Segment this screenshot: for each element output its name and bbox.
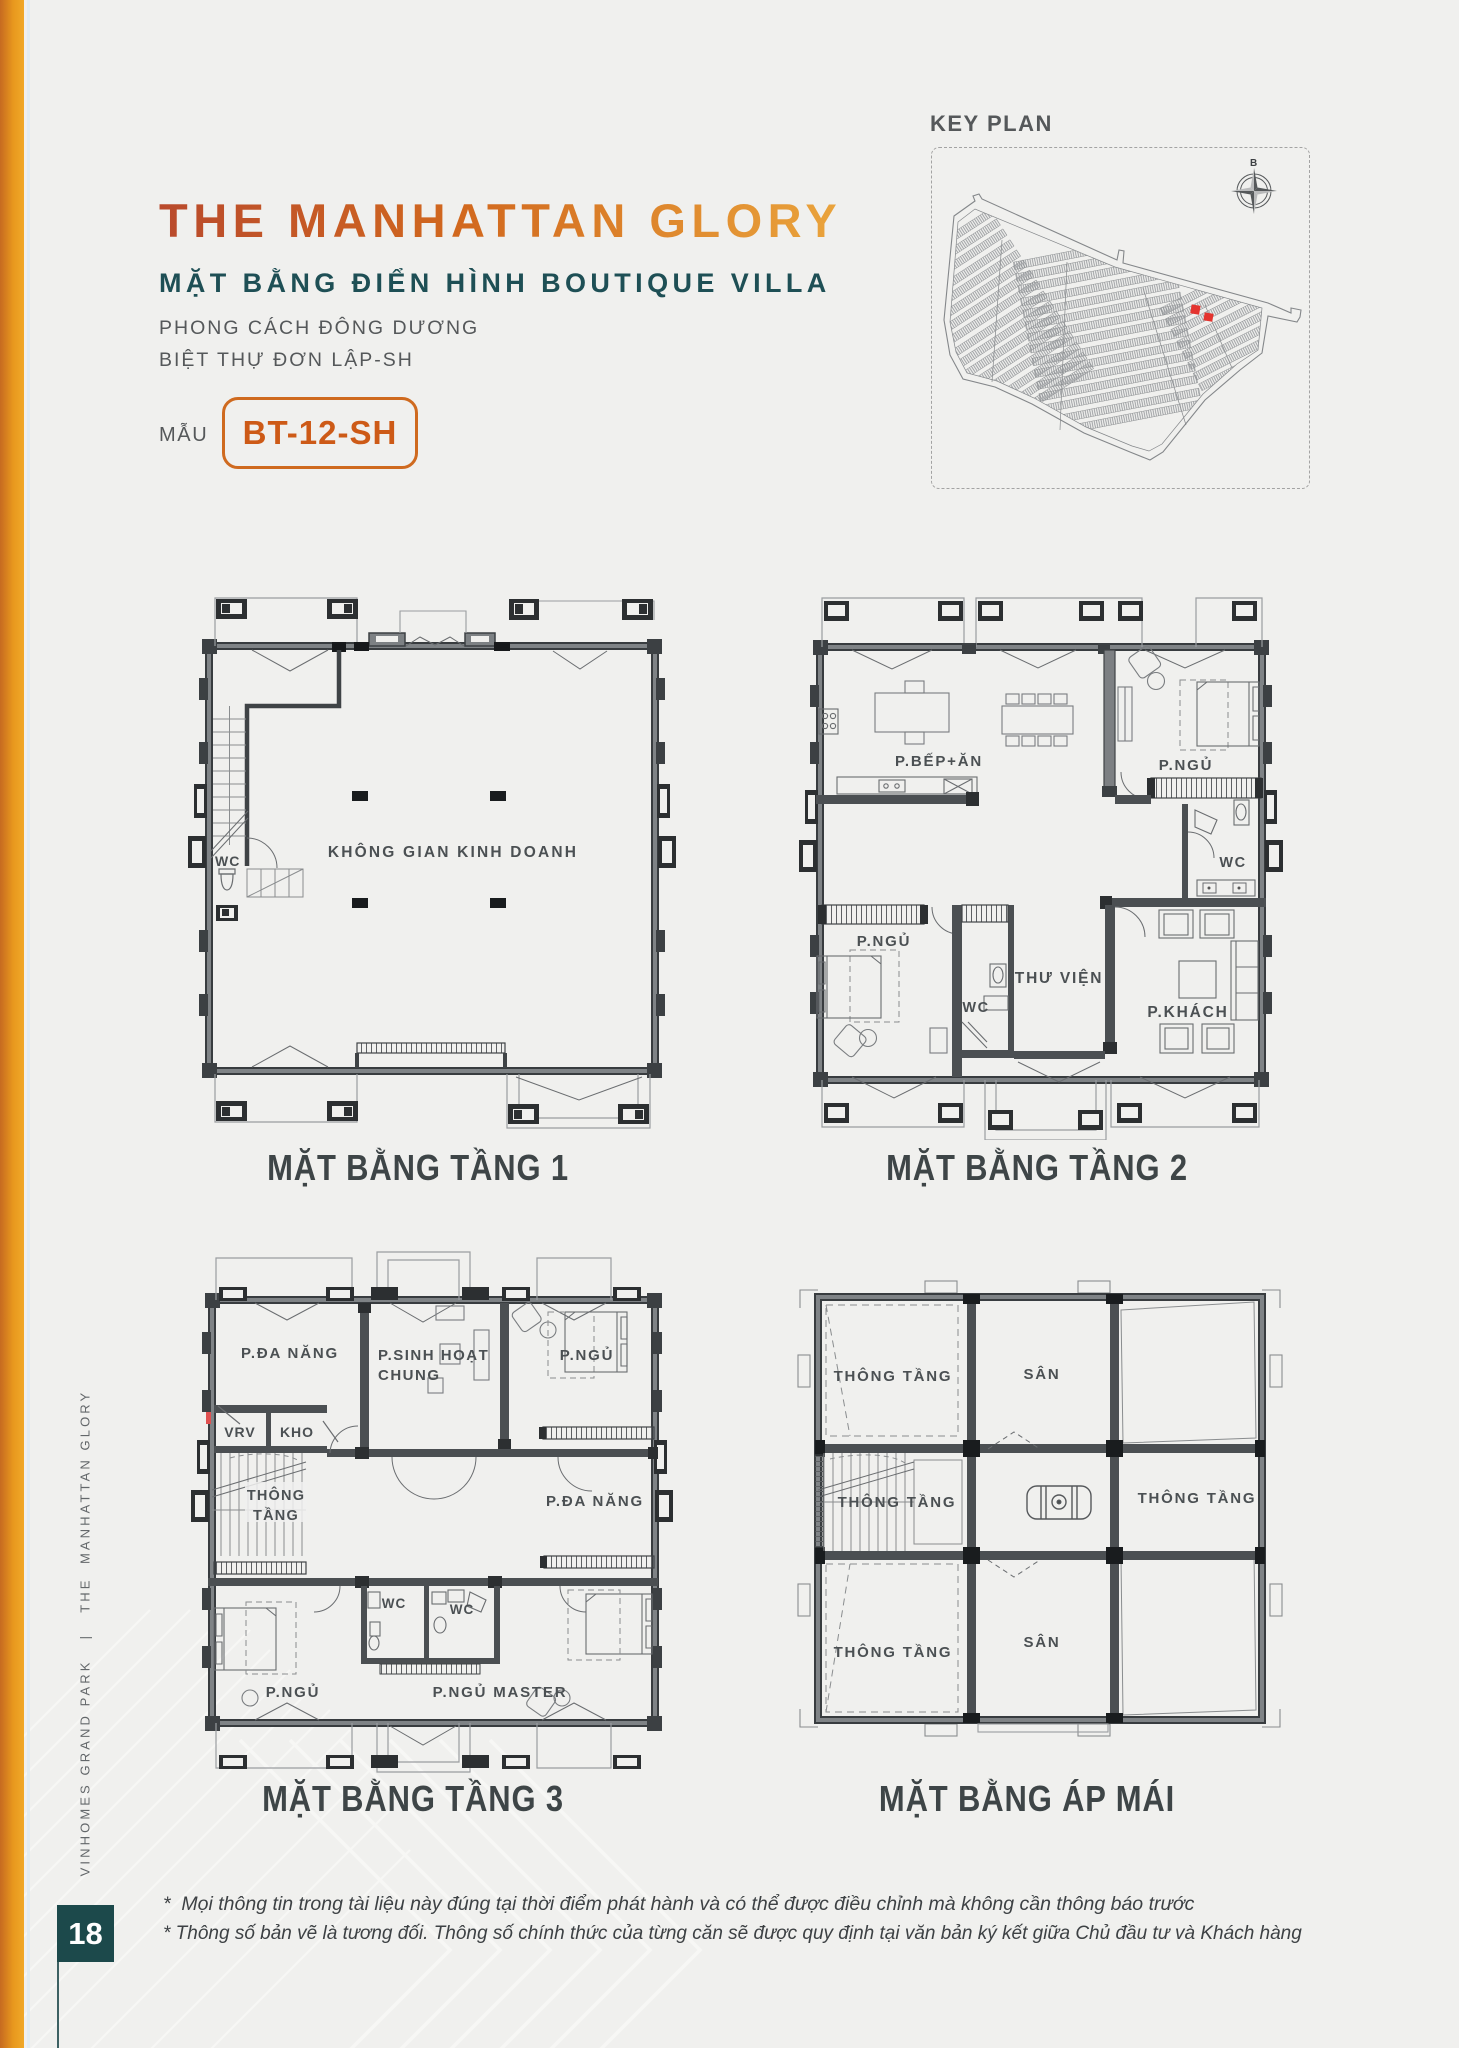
svg-text:THÔNG TẦNG: THÔNG TẦNG [838,1493,957,1511]
svg-text:WC: WC [382,1596,407,1611]
svg-text:P.BẾP+ĂN: P.BẾP+ĂN [895,753,983,770]
svg-text:SÂN: SÂN [1023,1365,1060,1383]
svg-text:KHÔNG GIAN KINH DOANH: KHÔNG GIAN KINH DOANH [328,843,578,861]
svg-text:P.NGỦ: P.NGỦ [266,1683,321,1701]
svg-text:CHUNG: CHUNG [378,1367,441,1384]
svg-text:WC: WC [1219,855,1246,871]
svg-text:THƯ VIỆN: THƯ VIỆN [1015,969,1103,987]
svg-text:B: B [1250,158,1257,169]
svg-text:P.NGỦ MASTER: P.NGỦ MASTER [433,1683,568,1701]
svg-text:THÔNG TẦNG: THÔNG TẦNG [834,1643,953,1661]
svg-text:THÔNG TẦNG: THÔNG TẦNG [1138,1489,1257,1507]
svg-text:VRV: VRV [224,1424,256,1440]
svg-text:WC: WC [215,853,240,869]
svg-text:THÔNG TẦNG: THÔNG TẦNG [834,1367,953,1385]
svg-text:P.NGỦ: P.NGỦ [1159,756,1214,774]
svg-text:P.ĐA NĂNG: P.ĐA NĂNG [241,1345,339,1362]
svg-text:P.SINH HOẠT: P.SINH HOẠT [378,1347,489,1364]
svg-text:WC: WC [962,1000,989,1016]
svg-text:KHO: KHO [280,1424,314,1440]
svg-text:P.NGỦ: P.NGỦ [857,932,912,950]
svg-text:TẦNG: TẦNG [253,1507,299,1524]
svg-text:P.NGỦ: P.NGỦ [560,1346,615,1364]
svg-text:THÔNG: THÔNG [247,1486,305,1504]
svg-text:SÂN: SÂN [1023,1633,1060,1651]
svg-text:P.ĐA NĂNG: P.ĐA NĂNG [546,1493,644,1510]
svg-text:WC: WC [450,1602,475,1617]
svg-text:P.KHÁCH: P.KHÁCH [1147,1004,1228,1021]
